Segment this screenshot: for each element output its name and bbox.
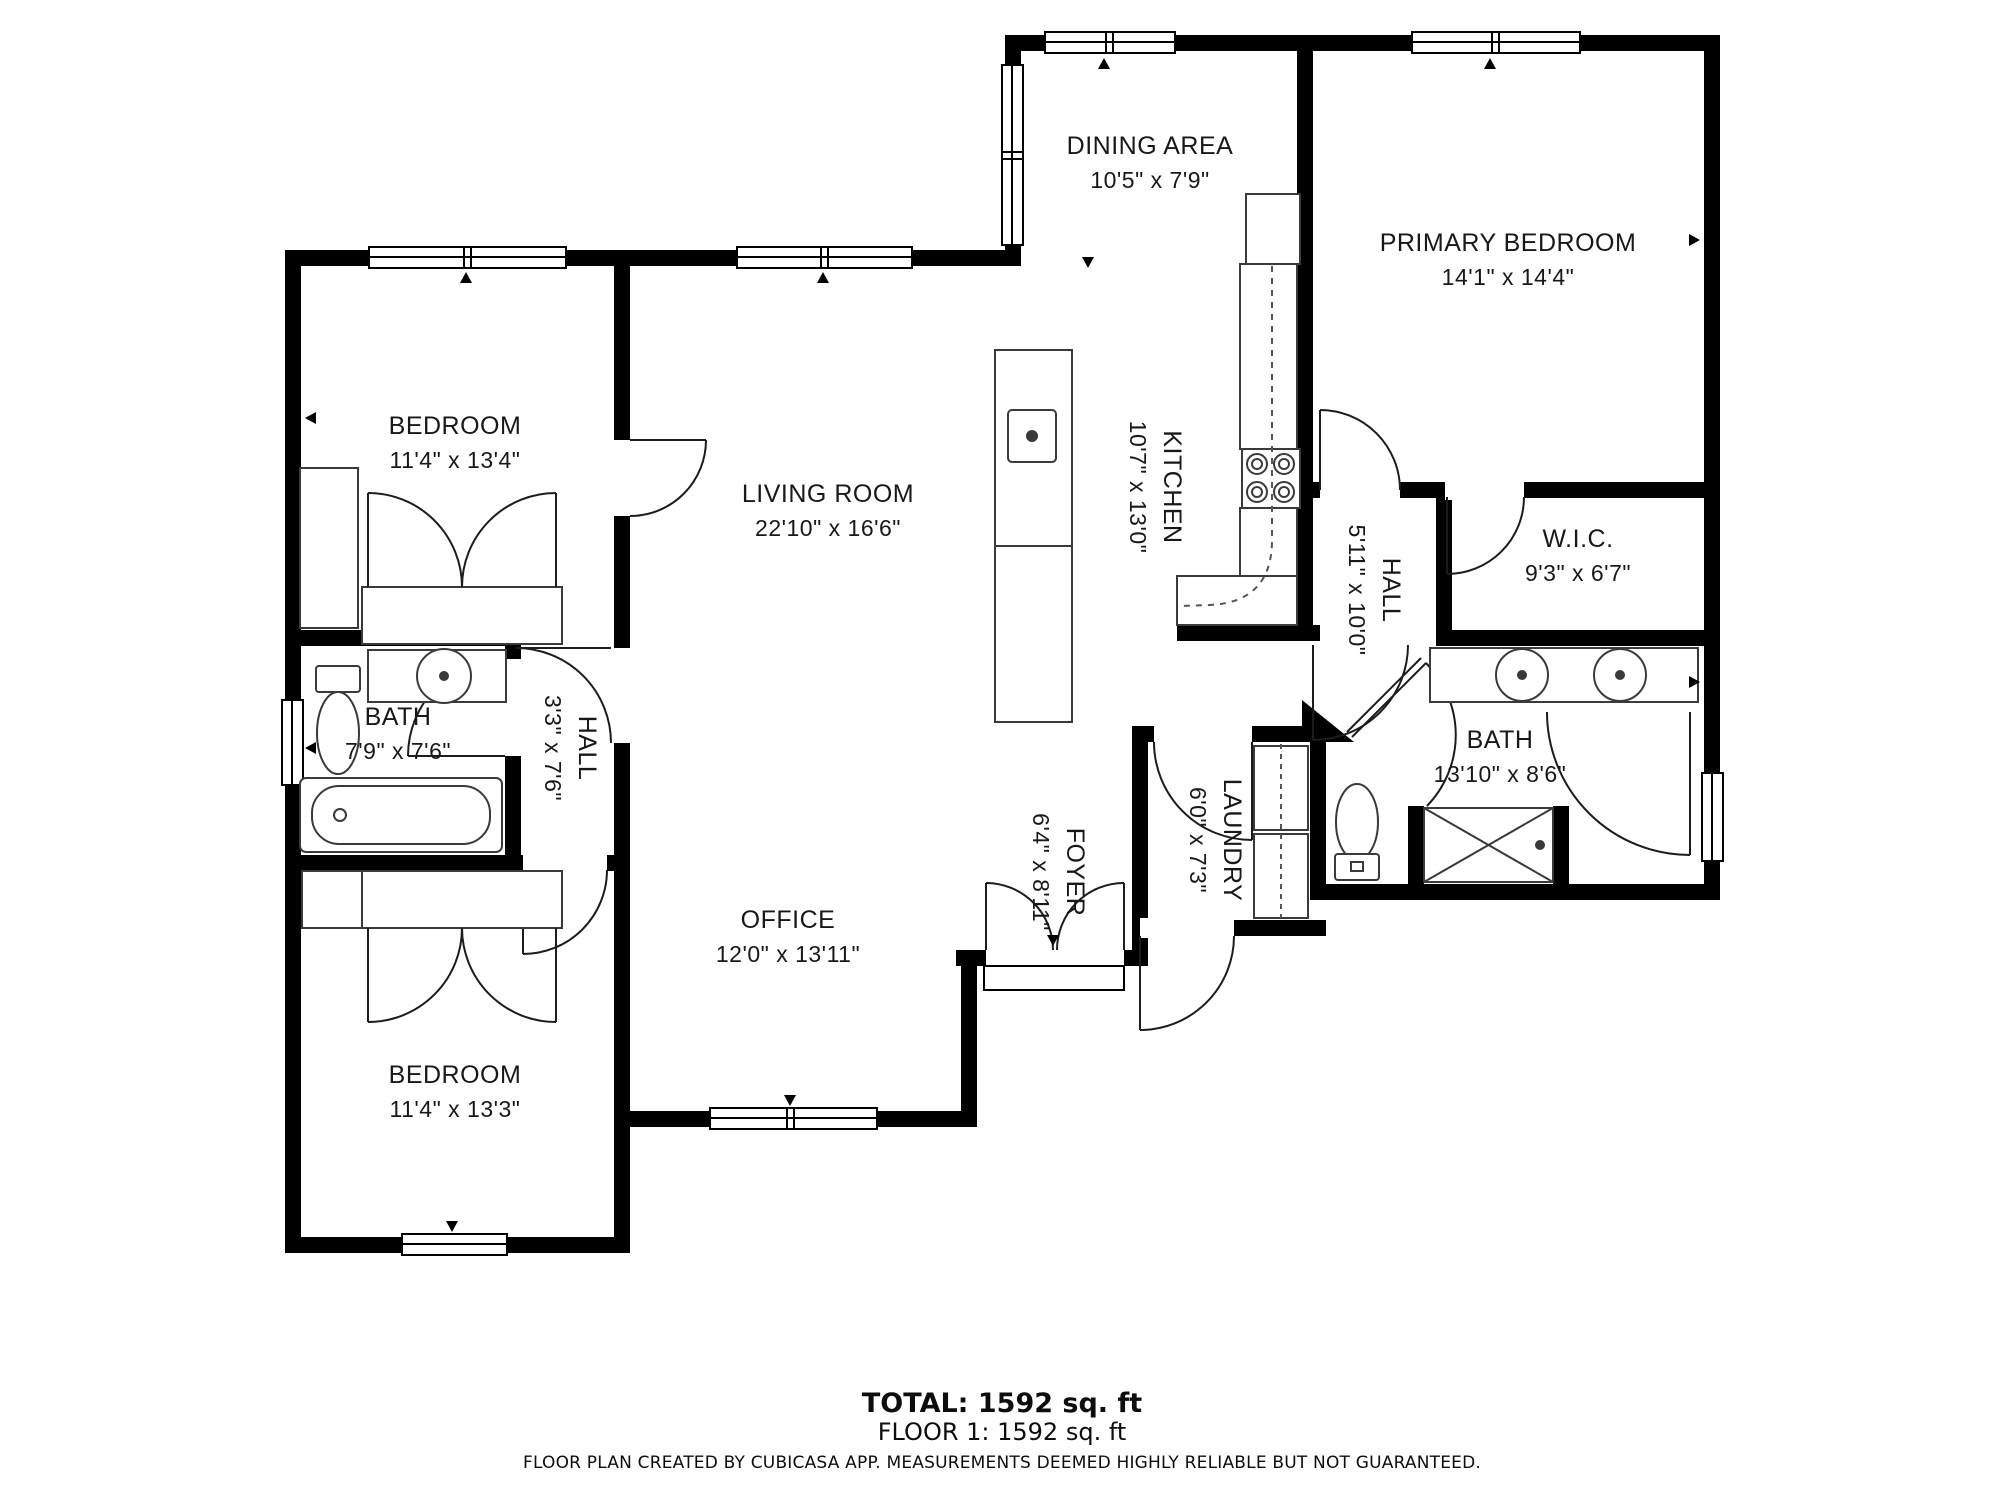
room-label-office: OFFICE 12'0" x 13'11" [716, 903, 860, 971]
kitchen-island [995, 350, 1072, 722]
window-office-bottom [710, 1108, 877, 1129]
floor-plan-page: DINING AREA 10'5" x 7'9" PRIMARY BEDROOM… [0, 0, 2000, 1500]
fridge-icon [1246, 194, 1300, 264]
toilet-icon-2 [1335, 784, 1379, 880]
door-bedroom-top [630, 440, 706, 516]
disclaimer-text: FLOOR PLAN CREATED BY CUBICASA APP. MEAS… [523, 1453, 1481, 1473]
room-label-living-room: LIVING ROOM 22'10" x 16'6" [742, 477, 914, 545]
room-label-bedroom-top: BEDROOM 11'4" x 13'4" [389, 409, 522, 477]
window-living-top [737, 247, 912, 268]
floor-area-text: FLOOR 1: 1592 sq. ft [878, 1418, 1127, 1446]
entry-threshold [984, 966, 1124, 990]
room-label-laundry: LAUNDRY 6'0" x 7'3" [1181, 779, 1249, 902]
room-label-bath-left: BATH 7'9" x 7'6" [345, 700, 451, 768]
kitchen-counter [1177, 264, 1297, 625]
double-vanity-icon [1430, 648, 1698, 702]
washer-dryer-icon [1254, 744, 1308, 918]
total-area-text: TOTAL: 1592 sq. ft [862, 1388, 1142, 1419]
room-label-primary-bedroom: PRIMARY BEDROOM 14'1" x 14'4" [1380, 226, 1637, 294]
closet-doors-bedroom-top [362, 493, 562, 644]
room-label-bedroom-bottom: BEDROOM 11'4" x 13'3" [389, 1058, 522, 1126]
closet-box-top [300, 468, 358, 628]
room-label-wic: W.I.C. 9'3" x 6'7" [1525, 522, 1631, 590]
window-bedroom-top [369, 247, 566, 268]
room-label-bath-right: BATH 13'10" x 8'6" [1434, 723, 1567, 791]
window-dining-left [1002, 65, 1023, 245]
window-dining-top [1045, 32, 1175, 53]
window-bedroom-bottom [402, 1234, 507, 1255]
closet-box-bottom [302, 871, 362, 928]
floor-plan-drawing [0, 0, 2000, 1500]
door-wic [1447, 497, 1524, 574]
window-bath-left [282, 700, 303, 785]
door-laundry-exterior [1140, 936, 1234, 1030]
sink-vanity-icon [368, 649, 506, 703]
room-label-hall-upper: HALL 5'11" x 10'0" [1340, 525, 1408, 656]
shower-icon [1424, 808, 1553, 882]
closet-doors-bedroom-bottom [362, 871, 562, 1022]
window-bath-right [1702, 773, 1723, 861]
window-primary-top [1412, 32, 1580, 53]
room-label-hall-lower: HALL 3'3" x 7'6" [536, 695, 604, 801]
room-label-dining-area: DINING AREA 10'5" x 7'9" [1067, 129, 1234, 197]
room-label-foyer: FOYER 6'4" x 8'11" [1024, 813, 1092, 931]
bathtub-icon [300, 778, 502, 852]
room-label-kitchen: KITCHEN 10'7" x 13'0" [1121, 421, 1189, 554]
door-primary-bedroom [1320, 410, 1400, 490]
